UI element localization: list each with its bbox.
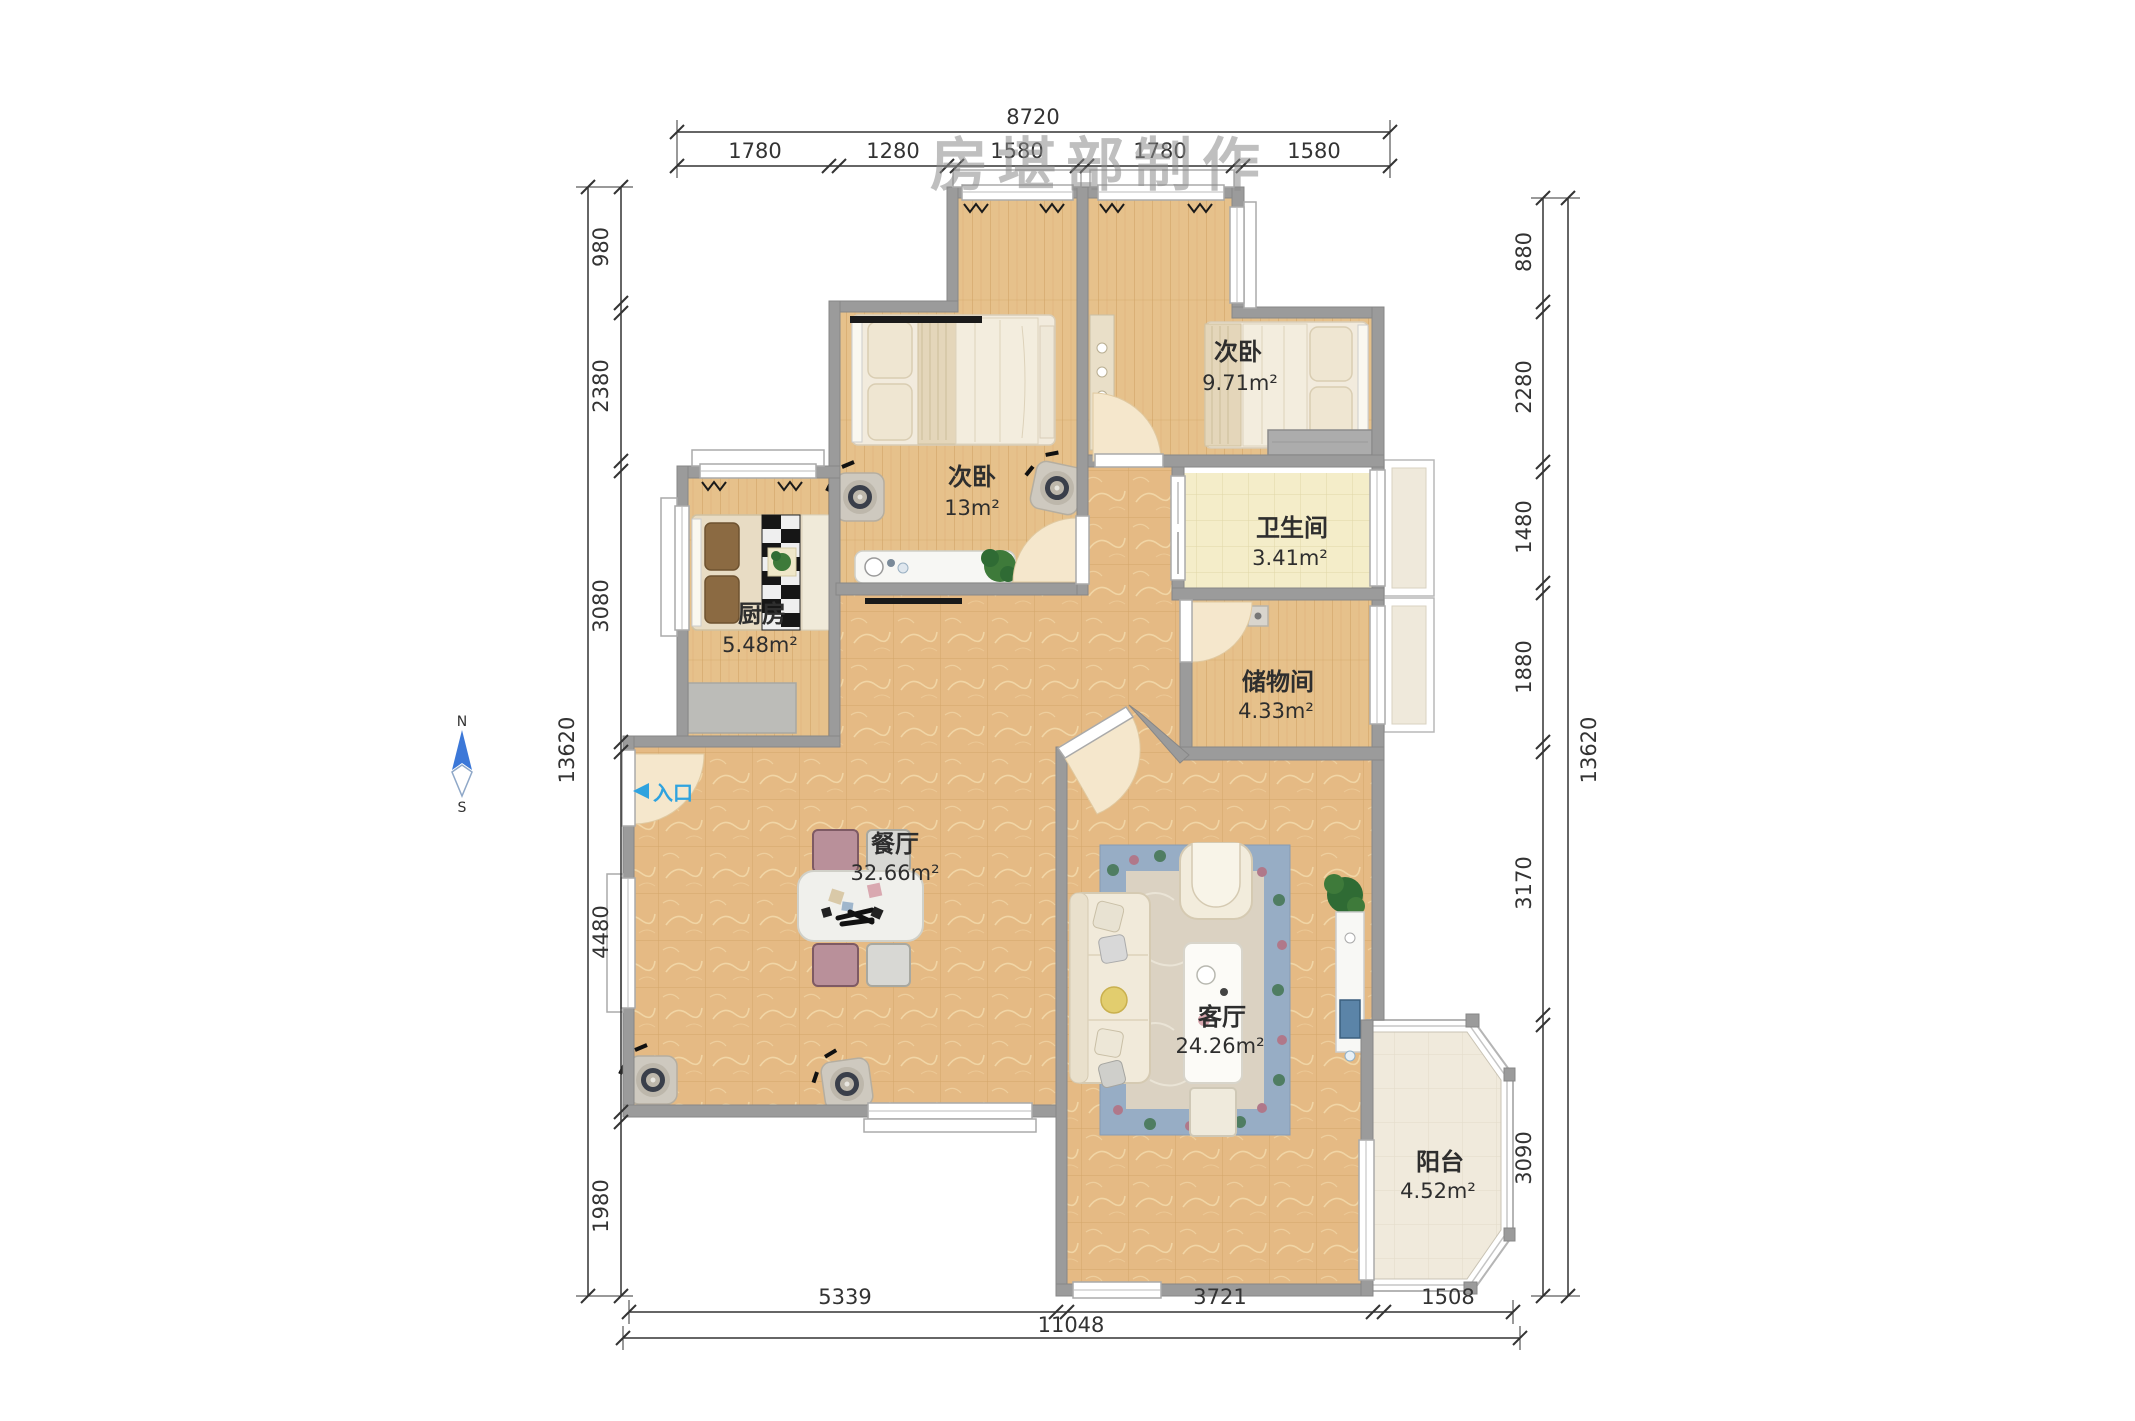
bedroom2-side-window-sill xyxy=(1244,202,1256,308)
dim-top-seg: 1780 xyxy=(728,139,781,163)
bathroom-area: 3.41m² xyxy=(1252,546,1328,570)
bedroom1-counter xyxy=(855,549,1016,583)
balcony-label: 阳台 xyxy=(1416,1148,1464,1176)
dim-right-seg: 1480 xyxy=(1512,500,1536,553)
living-side-stool xyxy=(1190,1088,1236,1136)
dining-label: 餐厅 xyxy=(871,830,919,858)
dim-left-seg: 2380 xyxy=(589,359,613,412)
dim-bottom-total: 11048 xyxy=(1038,1313,1105,1337)
dim-left-seg: 3080 xyxy=(589,579,613,632)
hall-floor xyxy=(840,595,1088,747)
kitchen-area: 5.48m² xyxy=(722,633,798,657)
compass-north-label: N xyxy=(457,714,467,730)
dim-right-seg: 3170 xyxy=(1512,856,1536,909)
dining-south-window-sill xyxy=(864,1119,1036,1132)
living-label: 客厅 xyxy=(1198,1003,1246,1031)
dim-top-total: 8720 xyxy=(1006,105,1059,129)
dim-left-seg: 4480 xyxy=(589,905,613,958)
entrance-label: 入口 xyxy=(653,781,693,805)
living-sofa xyxy=(1070,893,1150,1089)
dining-area: 32.66m² xyxy=(851,861,940,885)
dim-top-seg: 1580 xyxy=(1287,139,1340,163)
dim-right-total: 13620 xyxy=(1577,717,1601,784)
kitchen-counter xyxy=(688,683,796,733)
living-area: 24.26m² xyxy=(1176,1034,1265,1058)
dim-right-seg: 2280 xyxy=(1512,360,1536,413)
compass-south-label: S xyxy=(458,800,467,816)
bedroom1-label: 次卧 xyxy=(948,463,996,491)
storage-niche xyxy=(1384,598,1434,732)
bedroom2-label: 次卧 xyxy=(1214,338,1262,366)
dining-chair xyxy=(867,944,910,986)
dim-top-seg: 1280 xyxy=(866,139,919,163)
dim-bottom-seg: 3721 xyxy=(1193,1285,1246,1309)
storage-label: 储物间 xyxy=(1242,668,1314,696)
bathroom-door xyxy=(1171,476,1185,580)
bedroom1-bed xyxy=(852,315,1055,445)
bedroom2-wardrobe xyxy=(1268,430,1372,455)
bedroom1-wardrobe-bar xyxy=(850,316,982,323)
storage-area: 4.33m² xyxy=(1238,699,1314,723)
floor-plan-page: 次卧 13m² 次卧 9.71m² 卫生间 3.41m² 储物间 4.33m² … xyxy=(0,0,2135,1421)
dim-left-seg: 1980 xyxy=(589,1179,613,1232)
dim-right-ticks xyxy=(1536,191,1575,1303)
bedroom1-appliance-bar xyxy=(865,598,962,604)
corridor-floor xyxy=(1088,467,1180,747)
compass-south-needle-icon xyxy=(452,765,472,796)
bedroom2-area: 9.71m² xyxy=(1202,371,1278,395)
dim-left-seg: 980 xyxy=(589,227,613,267)
bedroom1-area: 13m² xyxy=(944,496,1000,520)
balcony-area: 4.52m² xyxy=(1400,1179,1476,1203)
bathroom-niche xyxy=(1384,460,1434,596)
dim-left-total: 13620 xyxy=(555,717,579,784)
tv-console xyxy=(1336,912,1364,1061)
dim-bottom-seg: 5339 xyxy=(818,1285,871,1309)
dim-bottom-seg: 1508 xyxy=(1421,1285,1474,1309)
living-armchair xyxy=(1180,843,1252,919)
compass: N S xyxy=(452,714,472,816)
floor-plan-canvas: 次卧 13m² 次卧 9.71m² 卫生间 3.41m² 储物间 4.33m² … xyxy=(0,0,2135,1421)
watermark: 房堪部制作 xyxy=(930,131,1270,199)
dim-right-seg: 880 xyxy=(1512,232,1536,272)
kitchen-label: 厨房 xyxy=(738,600,786,628)
dim-right-seg: 3090 xyxy=(1512,1131,1536,1184)
bathroom-label: 卫生间 xyxy=(1256,514,1328,542)
dining-chair xyxy=(813,944,858,986)
compass-north-needle-icon xyxy=(452,730,472,770)
dim-right-seg: 1880 xyxy=(1512,640,1536,693)
